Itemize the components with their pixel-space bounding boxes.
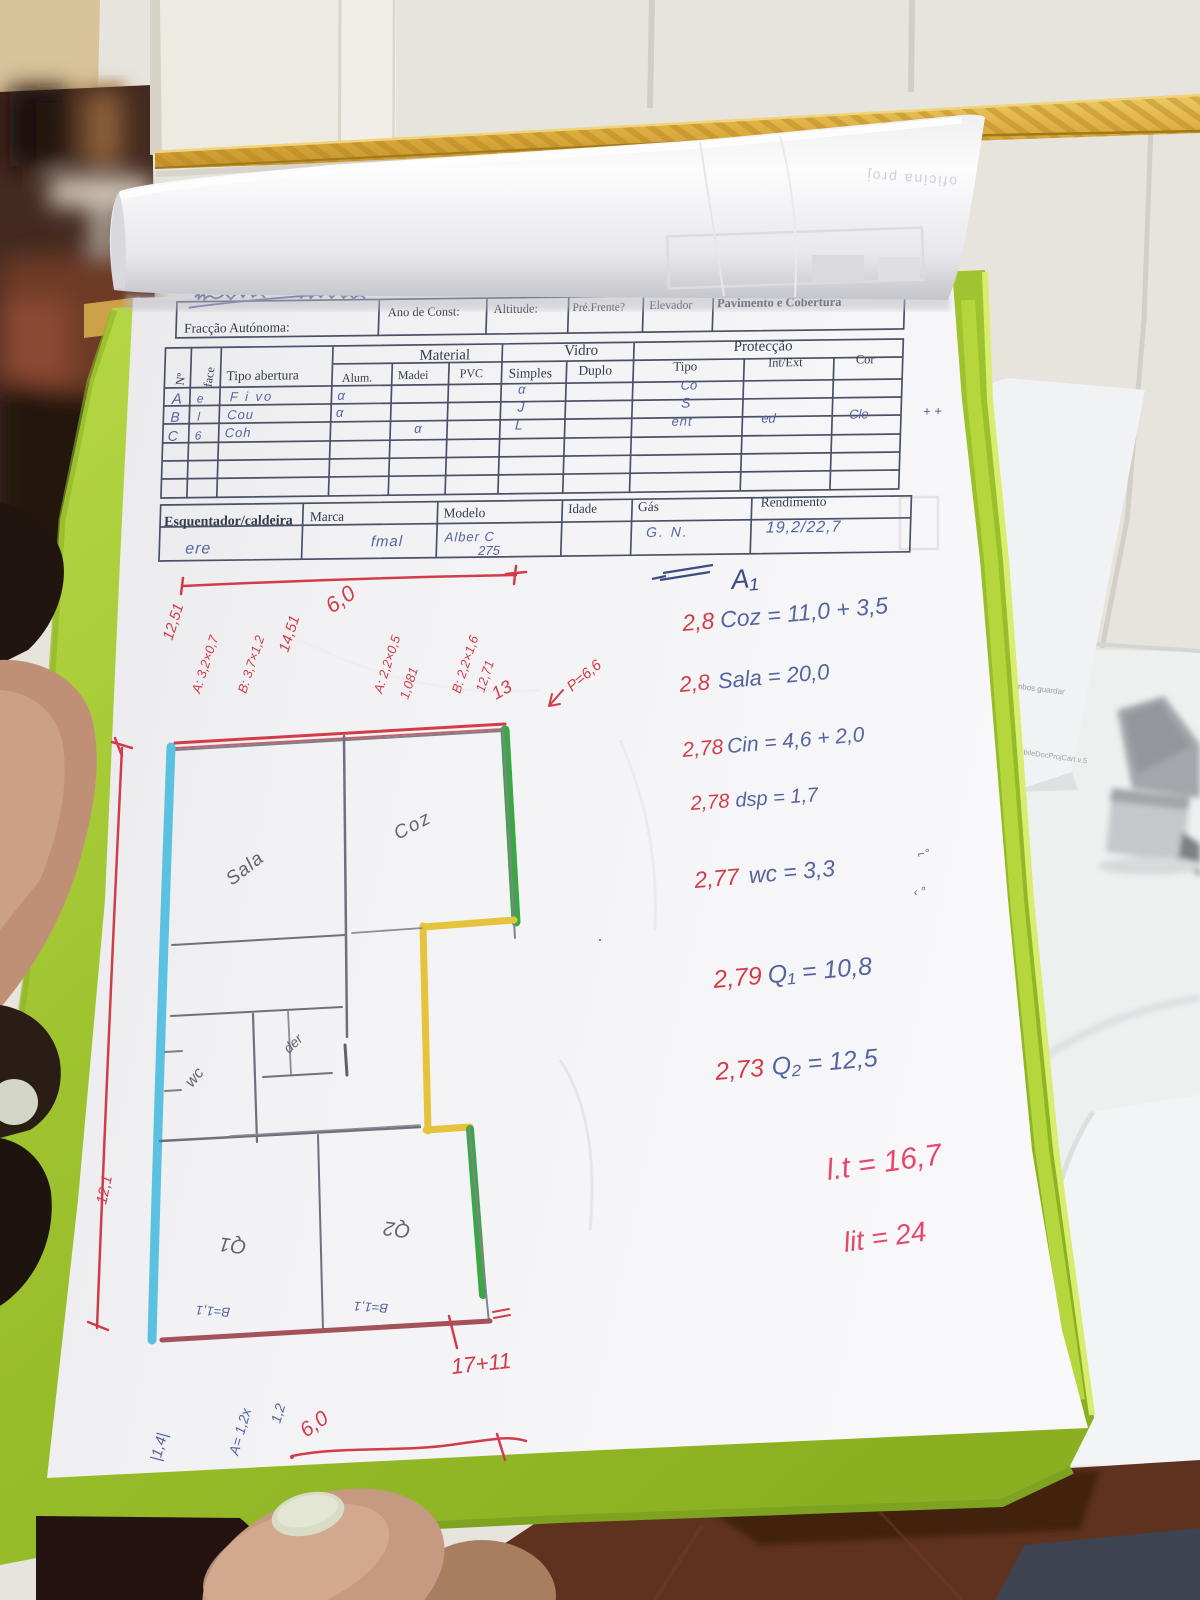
svg-text:Vidro: Vidro [564,343,598,359]
svg-text:Fracção Autónoma:: Fracção Autónoma: [184,319,290,335]
svg-text:⌐°: ⌐° [917,846,930,861]
svg-text:ed: ed [761,410,777,425]
svg-text:Esquentador/caldeira: Esquentador/caldeira [164,513,293,530]
svg-text:A: A [171,391,183,408]
svg-text:Material: Material [419,347,470,364]
svg-text:+ +: + + [923,403,943,418]
svg-text:A₁: A₁ [728,563,759,595]
svg-text:Gás: Gás [638,499,659,514]
svg-text:B: B [170,409,180,425]
svg-text:Cor: Cor [856,352,876,366]
svg-text:Cle: Cle [849,406,869,421]
svg-text:6: 6 [195,429,202,443]
svg-text:Marca: Marca [310,509,345,524]
svg-text:Nº: Nº [173,372,189,386]
svg-text:Idade: Idade [568,501,597,516]
svg-text:Int/Ext: Int/Ext [768,355,804,369]
svg-text:α: α [337,388,345,403]
svg-text:275: 275 [477,543,501,558]
svg-text:ere: ere [185,540,212,557]
svg-text:ent: ent [671,414,693,429]
svg-text:α: α [336,405,344,420]
svg-text:PVC: PVC [460,366,484,380]
svg-text:Q1: Q1 [218,1232,247,1257]
svg-text:Cou: Cou [227,407,254,422]
svg-text:e: e [197,391,204,405]
svg-text:Rendimento: Rendimento [761,494,827,510]
svg-text:Modelo: Modelo [443,505,486,521]
svg-text:Q2: Q2 [382,1216,411,1241]
svg-text:Alum.: Alum. [342,370,373,384]
svg-text:Co: Co [680,377,697,392]
svg-text:C: C [168,428,179,444]
svg-text:Coh: Coh [225,425,252,440]
svg-text:L: L [515,417,523,433]
svg-text:Tipo abertura: Tipo abertura [226,367,299,383]
svg-text:Duplo: Duplo [578,363,612,378]
svg-text:Protecção: Protecção [733,338,792,355]
svg-text:B=1,1: B=1,1 [195,1303,230,1320]
svg-text:19,2/22,7: 19,2/22,7 [766,519,842,537]
svg-text:F i vo: F i vo [230,389,274,405]
svg-text:S: S [681,395,691,411]
svg-text:α: α [518,382,526,397]
svg-text:Simples: Simples [508,365,552,381]
svg-text:fmal: fmal [371,533,404,550]
svg-text:B=1,1: B=1,1 [353,1299,388,1316]
svg-text:G. N.: G. N. [646,524,689,541]
svg-text:α: α [414,421,422,436]
svg-text:Madei: Madei [398,368,430,382]
svg-text:Tipo: Tipo [673,358,697,373]
svg-text:‹ °: ‹ ° [913,884,927,899]
